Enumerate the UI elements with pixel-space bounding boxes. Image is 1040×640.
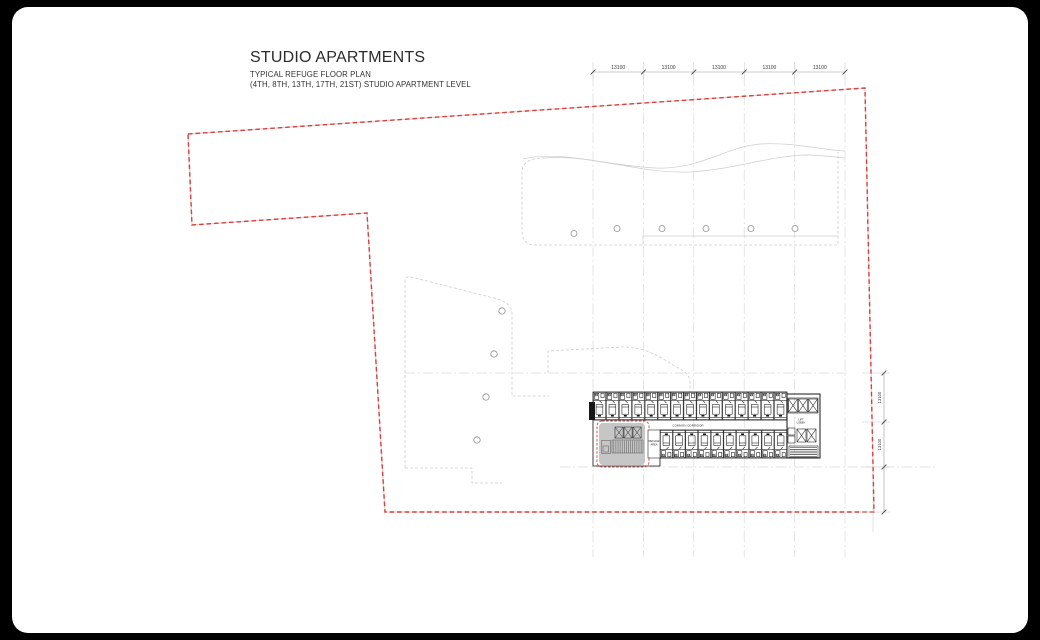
studio-unit (749, 430, 761, 457)
dimension-label: 13100 (611, 65, 625, 71)
site-contour-line (523, 144, 845, 168)
column-marker (483, 394, 489, 400)
left-wing-step-path (405, 468, 502, 483)
top-unit-row (593, 392, 786, 419)
dimension-label: 13100 (762, 65, 776, 71)
site-contour-line (545, 155, 845, 172)
studio-unit (686, 430, 698, 457)
dimension-label: 13100 (877, 438, 882, 450)
lift-shaft (799, 399, 808, 412)
left-wing-outline (405, 277, 549, 483)
column-marker (474, 437, 480, 443)
studio-unit (761, 392, 773, 419)
refuge-label: AREA (650, 442, 657, 446)
studio-unit (619, 392, 631, 419)
lift-shaft (809, 399, 818, 412)
studio-unit (658, 392, 670, 419)
floor-plan-drawing: 1310013100131001310013100 1310013100 (0, 0, 1040, 640)
studio-unit (723, 392, 735, 419)
lift-core: LIFT LOBBY (787, 394, 820, 458)
column-marker (614, 226, 620, 232)
column-marker (659, 226, 665, 232)
column-marker (792, 226, 798, 232)
bottom-unit-row (660, 430, 786, 457)
site-boundary (188, 88, 874, 512)
lift-shaft (789, 399, 798, 412)
studio-unit (645, 392, 657, 419)
tower-outline-path (522, 152, 838, 245)
studio-unit (710, 392, 722, 419)
column-marker (499, 308, 505, 314)
link-path (548, 347, 690, 392)
studio-unit (684, 392, 696, 419)
slab-edge-line (643, 236, 838, 245)
top-dimension-line: 1310013100131001310013100 (591, 62, 848, 79)
right-dimension-line: 1310013100 (862, 371, 890, 515)
site-boundary-underlay (188, 88, 874, 512)
studio-unit (673, 430, 685, 457)
studio-unit (774, 392, 786, 419)
lift-shaft (807, 429, 816, 442)
studio-unit (606, 392, 618, 419)
service-shaft (788, 436, 795, 443)
lift-shaft (797, 429, 806, 442)
studio-unit (698, 430, 710, 457)
refuge-label: REFUGE (649, 439, 660, 443)
studio-unit (593, 392, 605, 419)
corridor-label: COMMON CORRIDOR (672, 423, 704, 427)
dimension-label: 13100 (712, 65, 726, 71)
column-marker (571, 231, 577, 237)
dimension-label: 13100 (877, 391, 882, 403)
dimension-label: 13100 (662, 65, 676, 71)
service-shaft (788, 428, 795, 435)
link-outline (548, 347, 690, 392)
studio-unit (775, 430, 787, 457)
column-marker (748, 226, 754, 232)
side-stair-block (589, 402, 595, 420)
dimension-label: 13100 (813, 65, 827, 71)
studio-unit (711, 430, 723, 457)
studio-unit (736, 392, 748, 419)
column-marker (491, 351, 497, 357)
grid-lines (593, 75, 845, 557)
structural-columns (474, 226, 798, 444)
studio-unit (762, 430, 774, 457)
core-stair-treads (790, 448, 817, 457)
studio-unit (632, 392, 644, 419)
refuge-area: REFUGE AREA (597, 421, 660, 467)
lift-lobby-label: LOBBY (797, 421, 806, 425)
studio-unit (737, 430, 749, 457)
studio-unit (724, 430, 736, 457)
studio-unit (660, 430, 672, 457)
column-marker (703, 226, 709, 232)
site-boundary-line (188, 88, 874, 512)
studio-unit (697, 392, 709, 419)
studio-unit (749, 392, 761, 419)
studio-unit (671, 392, 683, 419)
